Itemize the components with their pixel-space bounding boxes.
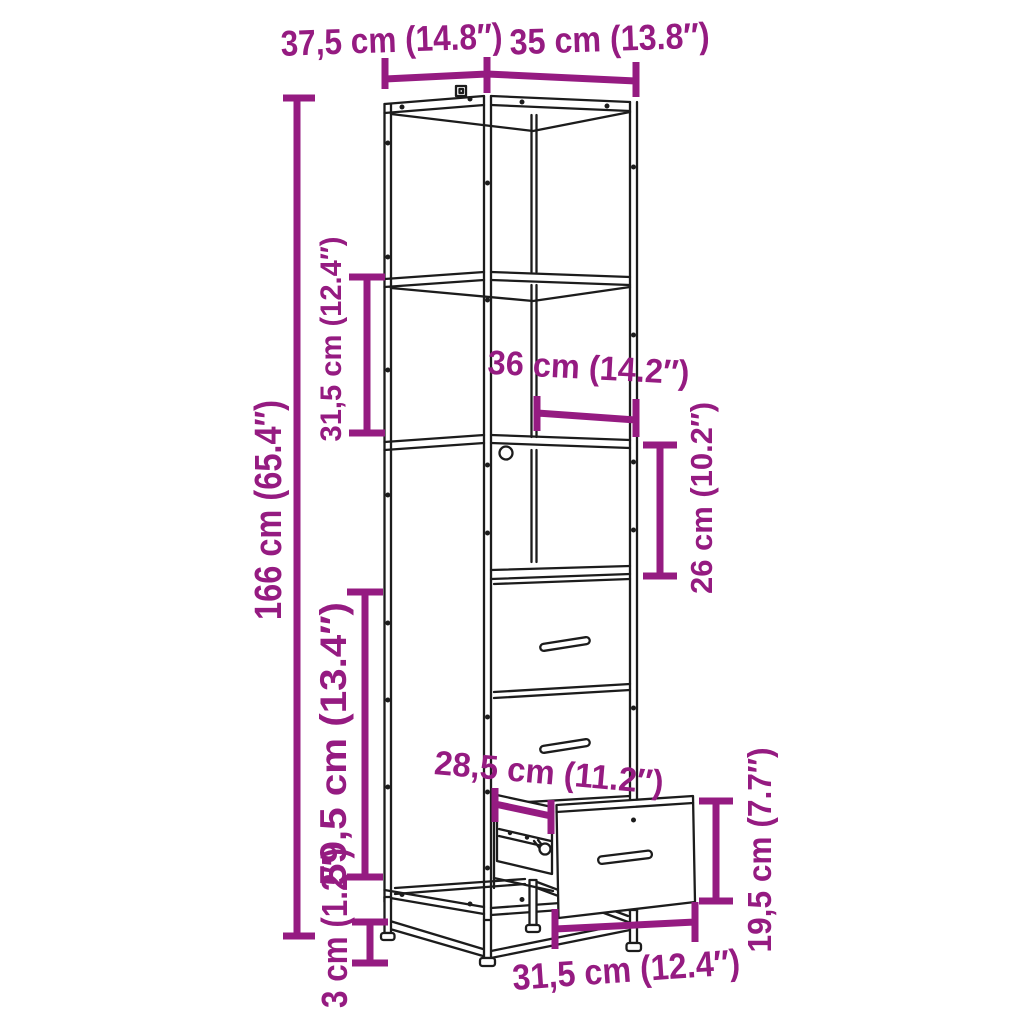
screw bbox=[385, 255, 390, 260]
dim-top-depth: 37,5 cm (14.8″) bbox=[280, 15, 503, 93]
slide-screw-2 bbox=[525, 835, 529, 839]
dim-line-drawer-front-height bbox=[699, 801, 733, 901]
screw bbox=[520, 100, 525, 105]
dim-label-lower-section-height: 59,5 cm (13.4″) bbox=[313, 602, 354, 886]
shelf-upper bbox=[385, 272, 631, 301]
dim-upper-shelf-height: 31,5 cm (12.4″) bbox=[315, 237, 385, 442]
dim-label-total-height: 166 cm (65.4″) bbox=[248, 400, 290, 620]
screw bbox=[485, 298, 490, 303]
screw bbox=[605, 104, 610, 109]
dim-label-top-width: 35 cm (13.8″) bbox=[509, 15, 710, 63]
screw bbox=[485, 463, 490, 468]
slide-screw-1 bbox=[508, 831, 512, 835]
screw bbox=[485, 181, 490, 186]
drawer-side-hole bbox=[540, 844, 551, 855]
screw bbox=[631, 460, 636, 465]
dim-total-height: 166 cm (65.4″) bbox=[248, 98, 315, 936]
screw bbox=[631, 165, 636, 170]
screw bbox=[385, 493, 390, 498]
screw bbox=[385, 621, 390, 626]
screw bbox=[520, 897, 525, 902]
dim-label-drawer-front-height: 19,5 cm (7.7″) bbox=[741, 748, 778, 953]
screw bbox=[400, 105, 405, 110]
dim-label-inner-width: 36 cm (14.2″) bbox=[487, 344, 691, 393]
dim-inner-width: 36 cm (14.2″) bbox=[487, 344, 691, 437]
dim-line-top-width bbox=[487, 62, 636, 97]
leg-front-left bbox=[484, 920, 491, 958]
dim-line-leg-height bbox=[352, 922, 388, 963]
dim-line-inner-width bbox=[537, 396, 636, 437]
screw bbox=[385, 368, 390, 373]
cable-hole bbox=[500, 447, 513, 460]
dim-label-upper-shelf-height: 31,5 cm (12.4″) bbox=[315, 237, 348, 442]
dim-label-drawer-width: 31,5 cm (12.4″) bbox=[511, 941, 741, 998]
screw bbox=[631, 333, 636, 338]
dim-label-top-depth: 37,5 cm (14.8″) bbox=[280, 15, 503, 64]
dim-drawer-front-height: 19,5 cm (7.7″) bbox=[699, 748, 778, 953]
dim-label-leg-height: 3 cm (1.2″) bbox=[314, 848, 355, 1008]
screw bbox=[631, 528, 636, 533]
product-dimension-image: 37,5 cm (14.8″) 35 cm (13.8″) 166 cm (65… bbox=[0, 0, 1024, 1024]
screw bbox=[385, 785, 390, 790]
screw bbox=[485, 715, 490, 720]
leg-back-left bbox=[385, 897, 392, 933]
dimension-diagram-svg: 37,5 cm (14.8″) 35 cm (13.8″) 166 cm (65… bbox=[0, 0, 1024, 1024]
dim-line-top-depth bbox=[385, 57, 487, 93]
foot-back-right bbox=[526, 925, 540, 932]
foot-back-left bbox=[381, 933, 395, 940]
wall-bracket bbox=[456, 86, 466, 96]
dim-top-width: 35 cm (13.8″) bbox=[487, 15, 710, 97]
dim-leg-height: 3 cm (1.2″) bbox=[314, 848, 388, 1008]
drawer-handle-2 bbox=[540, 739, 590, 754]
foot-front-left bbox=[480, 958, 495, 966]
screw bbox=[631, 706, 636, 711]
dim-compartment-height: 26 cm (10.2″) bbox=[643, 402, 719, 594]
dim-line-upper-shelf-height bbox=[349, 277, 385, 433]
screw bbox=[468, 97, 473, 102]
screw bbox=[485, 866, 490, 871]
screw bbox=[631, 818, 636, 823]
screw bbox=[468, 902, 473, 907]
dim-line-compartment-height bbox=[643, 445, 677, 576]
screw bbox=[385, 141, 390, 146]
screw bbox=[485, 790, 490, 795]
dim-lower-section-height: 59,5 cm (13.4″) bbox=[313, 592, 383, 886]
dim-label-compartment-height: 26 cm (10.2″) bbox=[684, 402, 719, 594]
screw bbox=[400, 892, 405, 897]
cabinet-line-art bbox=[381, 86, 695, 966]
screw bbox=[385, 698, 390, 703]
screw bbox=[485, 531, 490, 536]
top-panel bbox=[385, 96, 631, 131]
compartment-floor bbox=[491, 566, 630, 579]
drawer-handle-1 bbox=[540, 637, 590, 652]
